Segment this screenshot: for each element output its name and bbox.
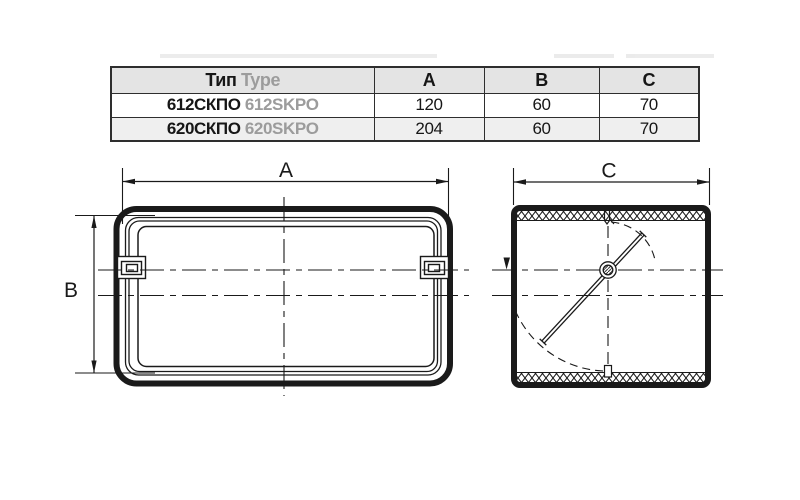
dim-c-label: C [601,160,616,183]
dim-c-arrow-right [697,179,710,184]
dim-a-arrow-left [123,179,136,184]
page: { "table": { "header": { "type_ru": "Тип… [0,0,800,500]
wall-arrow-mark [504,258,511,270]
dim-b-arrow-top [91,216,96,229]
front-outer-body [117,209,451,384]
axle-tab-right [421,257,449,279]
dim-c-arrow-left [514,179,527,184]
front-view [98,197,469,396]
bottom-stop-tab [605,366,612,378]
side-view [492,208,723,385]
dim-a-arrow-right [436,179,449,184]
dim-a-label: A [279,159,293,182]
dim-b-arrow-bottom [91,361,96,374]
seal-strip-top [517,211,705,220]
technical-drawing: A B [0,0,800,500]
axle-tab-left [118,257,146,279]
faint-artifacts [160,54,714,58]
side-outer-body [514,208,708,385]
dim-b-label: B [64,279,78,302]
blade-pivot [600,262,616,278]
